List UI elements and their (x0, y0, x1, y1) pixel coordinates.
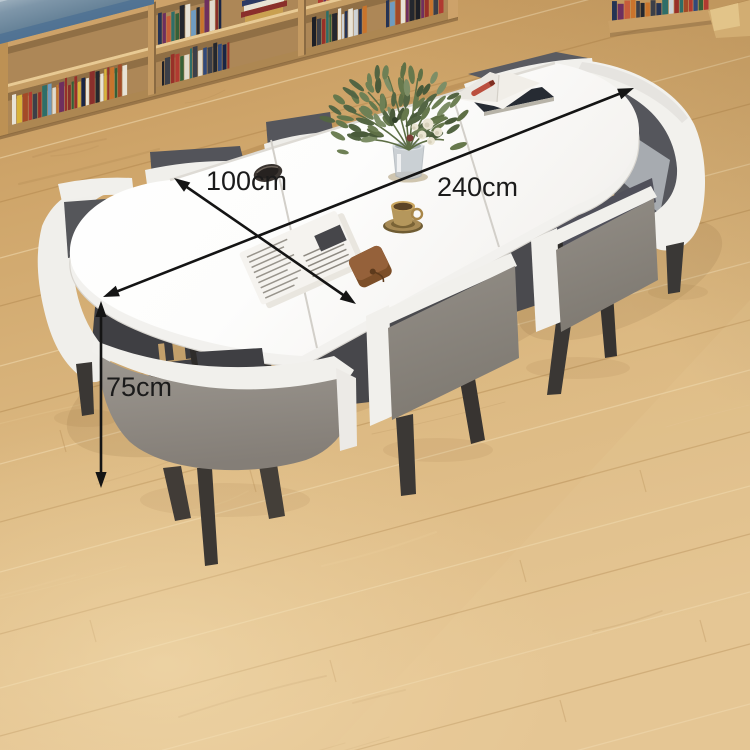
svg-text:75cm: 75cm (106, 372, 172, 402)
svg-text:240cm: 240cm (437, 172, 518, 202)
svg-text:100cm: 100cm (206, 166, 287, 196)
